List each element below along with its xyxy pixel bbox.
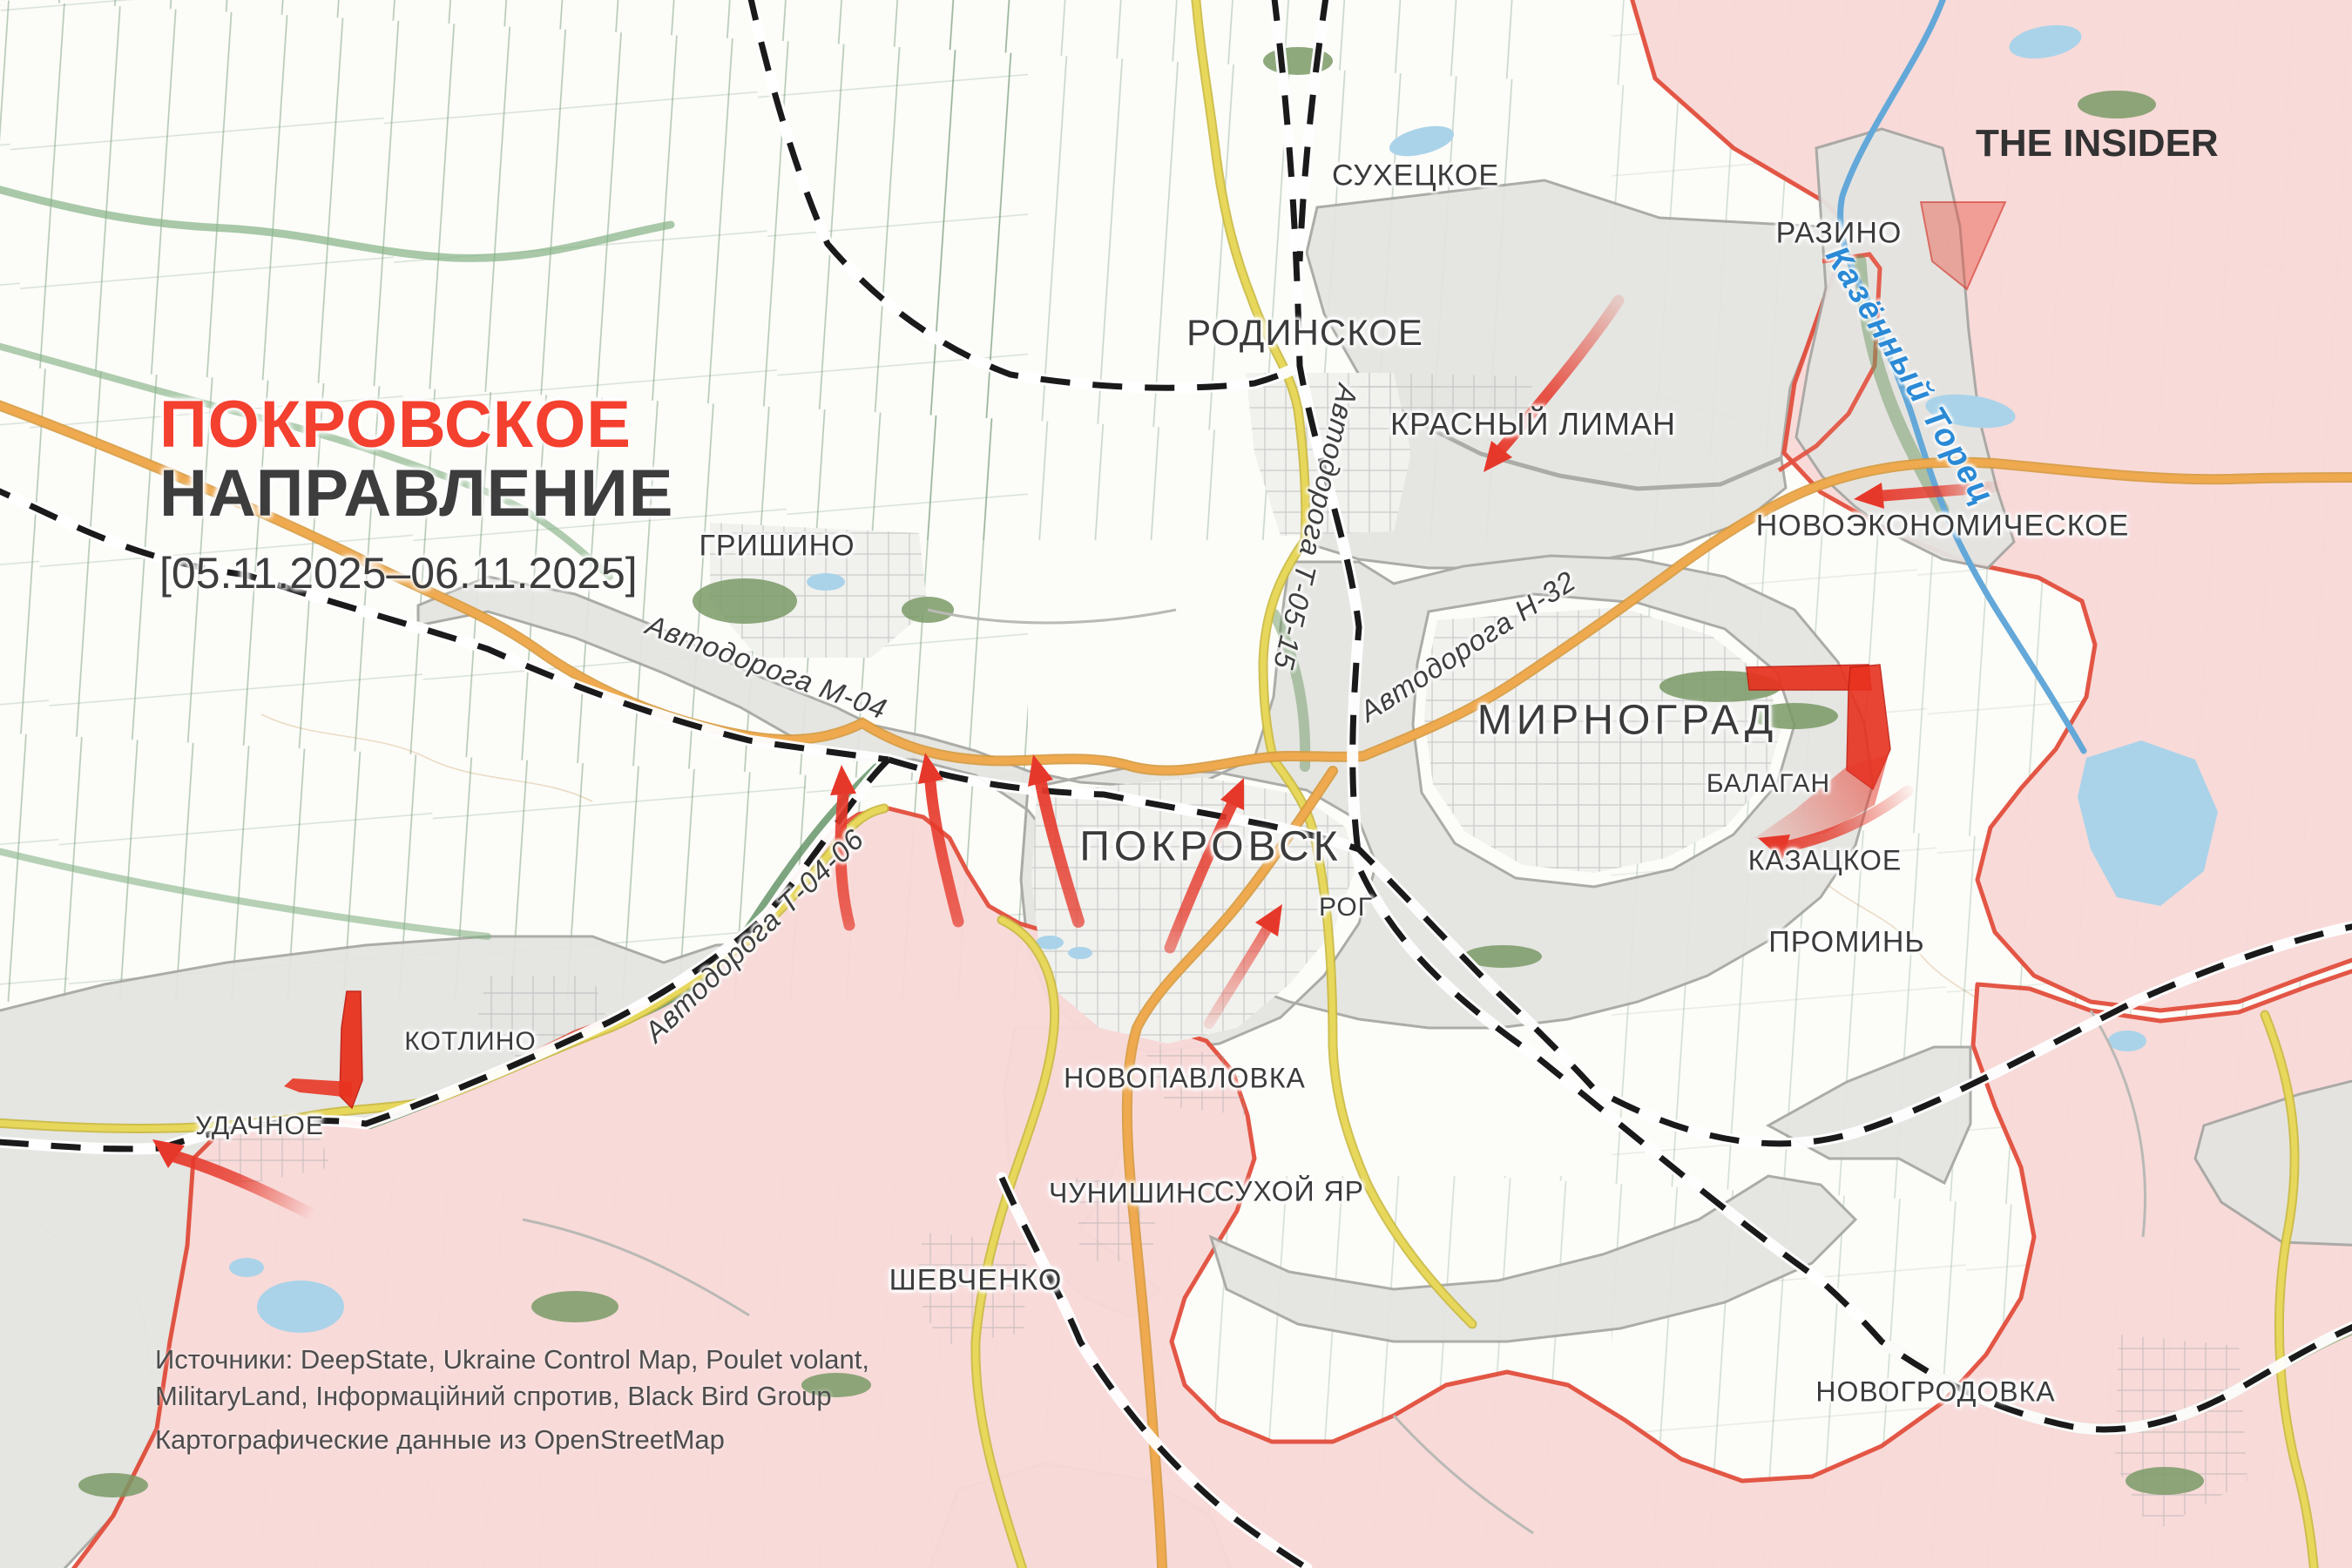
settlement-label-chunyshyne: ЧУНИШИНО <box>1049 1178 1220 1210</box>
settlement-label-rodynske: РОДИНСКОЕ <box>1186 312 1423 354</box>
sources-line-1: Источники: DeepState, Ukraine Control Ma… <box>155 1342 869 1378</box>
title-block: ПОКРОВСКОЕ НАПРАВЛЕНИЕ [05.11.2025–06.11… <box>159 390 674 596</box>
pond <box>229 1258 264 1277</box>
settlement-label-sukhetske: СУХЕЦКОЕ <box>1332 159 1499 193</box>
sources-line-3: Картографические данные из OpenStreetMap <box>155 1422 869 1458</box>
settlement-label-pokrovsk: ПОКРОВСК <box>1079 823 1342 871</box>
publisher-logo: THE INSIDER <box>1976 122 2219 166</box>
pond <box>2108 1031 2146 1051</box>
settlement-label-udachne: УДАЧНОЕ <box>195 1112 324 1141</box>
settlement-label-krasny-lyman: КРАСНЫЙ ЛИМАН <box>1390 406 1676 443</box>
sources-line-2: MilitaryLand, Інформаційний спротив, Bla… <box>155 1378 869 1415</box>
settlement-label-novohrodivka: НОВОГРОДОВКА <box>1815 1376 2055 1409</box>
title-direction-word: НАПРАВЛЕНИЕ <box>159 459 674 528</box>
settlement-label-balahan: БАЛАГАН <box>1707 769 1830 799</box>
settlement-label-shevchenko: ШЕВЧЕНКО <box>889 1264 1063 1298</box>
settlement-label-sukhyi-yar: СУХОЙ ЯР <box>1214 1176 1364 1208</box>
settlement-label-myrnohrad: МИРНОГРАД <box>1477 697 1777 745</box>
pond <box>807 573 845 591</box>
map-canvas: ПОКРОВСКОЕ НАПРАВЛЕНИЕ [05.11.2025–06.11… <box>0 0 2352 1568</box>
sources-note: Источники: DeepState, Ukraine Control Ma… <box>155 1342 869 1458</box>
settlement-label-kazatske: КАЗАЦКОЕ <box>1748 845 1902 877</box>
map-graphics <box>0 0 2352 1568</box>
settlement-label-hryshyne: ГРИШИНО <box>699 530 855 564</box>
pond <box>1068 947 1092 959</box>
settlement-label-kotlyne: КОТЛИНО <box>404 1027 536 1057</box>
settlement-label-novoekonomichne: НОВОЭКОНОМИЧЕСКОЕ <box>1756 510 2130 544</box>
date-range: [05.11.2025–06.11.2025] <box>159 551 674 596</box>
settlement-label-promin: ПРОМИНЬ <box>1768 926 1924 960</box>
lake-southwest <box>257 1281 344 1333</box>
title-direction: ПОКРОВСКОЕ <box>159 390 674 459</box>
settlement-label-rih: РОГ <box>1319 893 1373 923</box>
settlement-label-novopavlivka: НОВОПАВЛОВКА <box>1064 1063 1306 1095</box>
